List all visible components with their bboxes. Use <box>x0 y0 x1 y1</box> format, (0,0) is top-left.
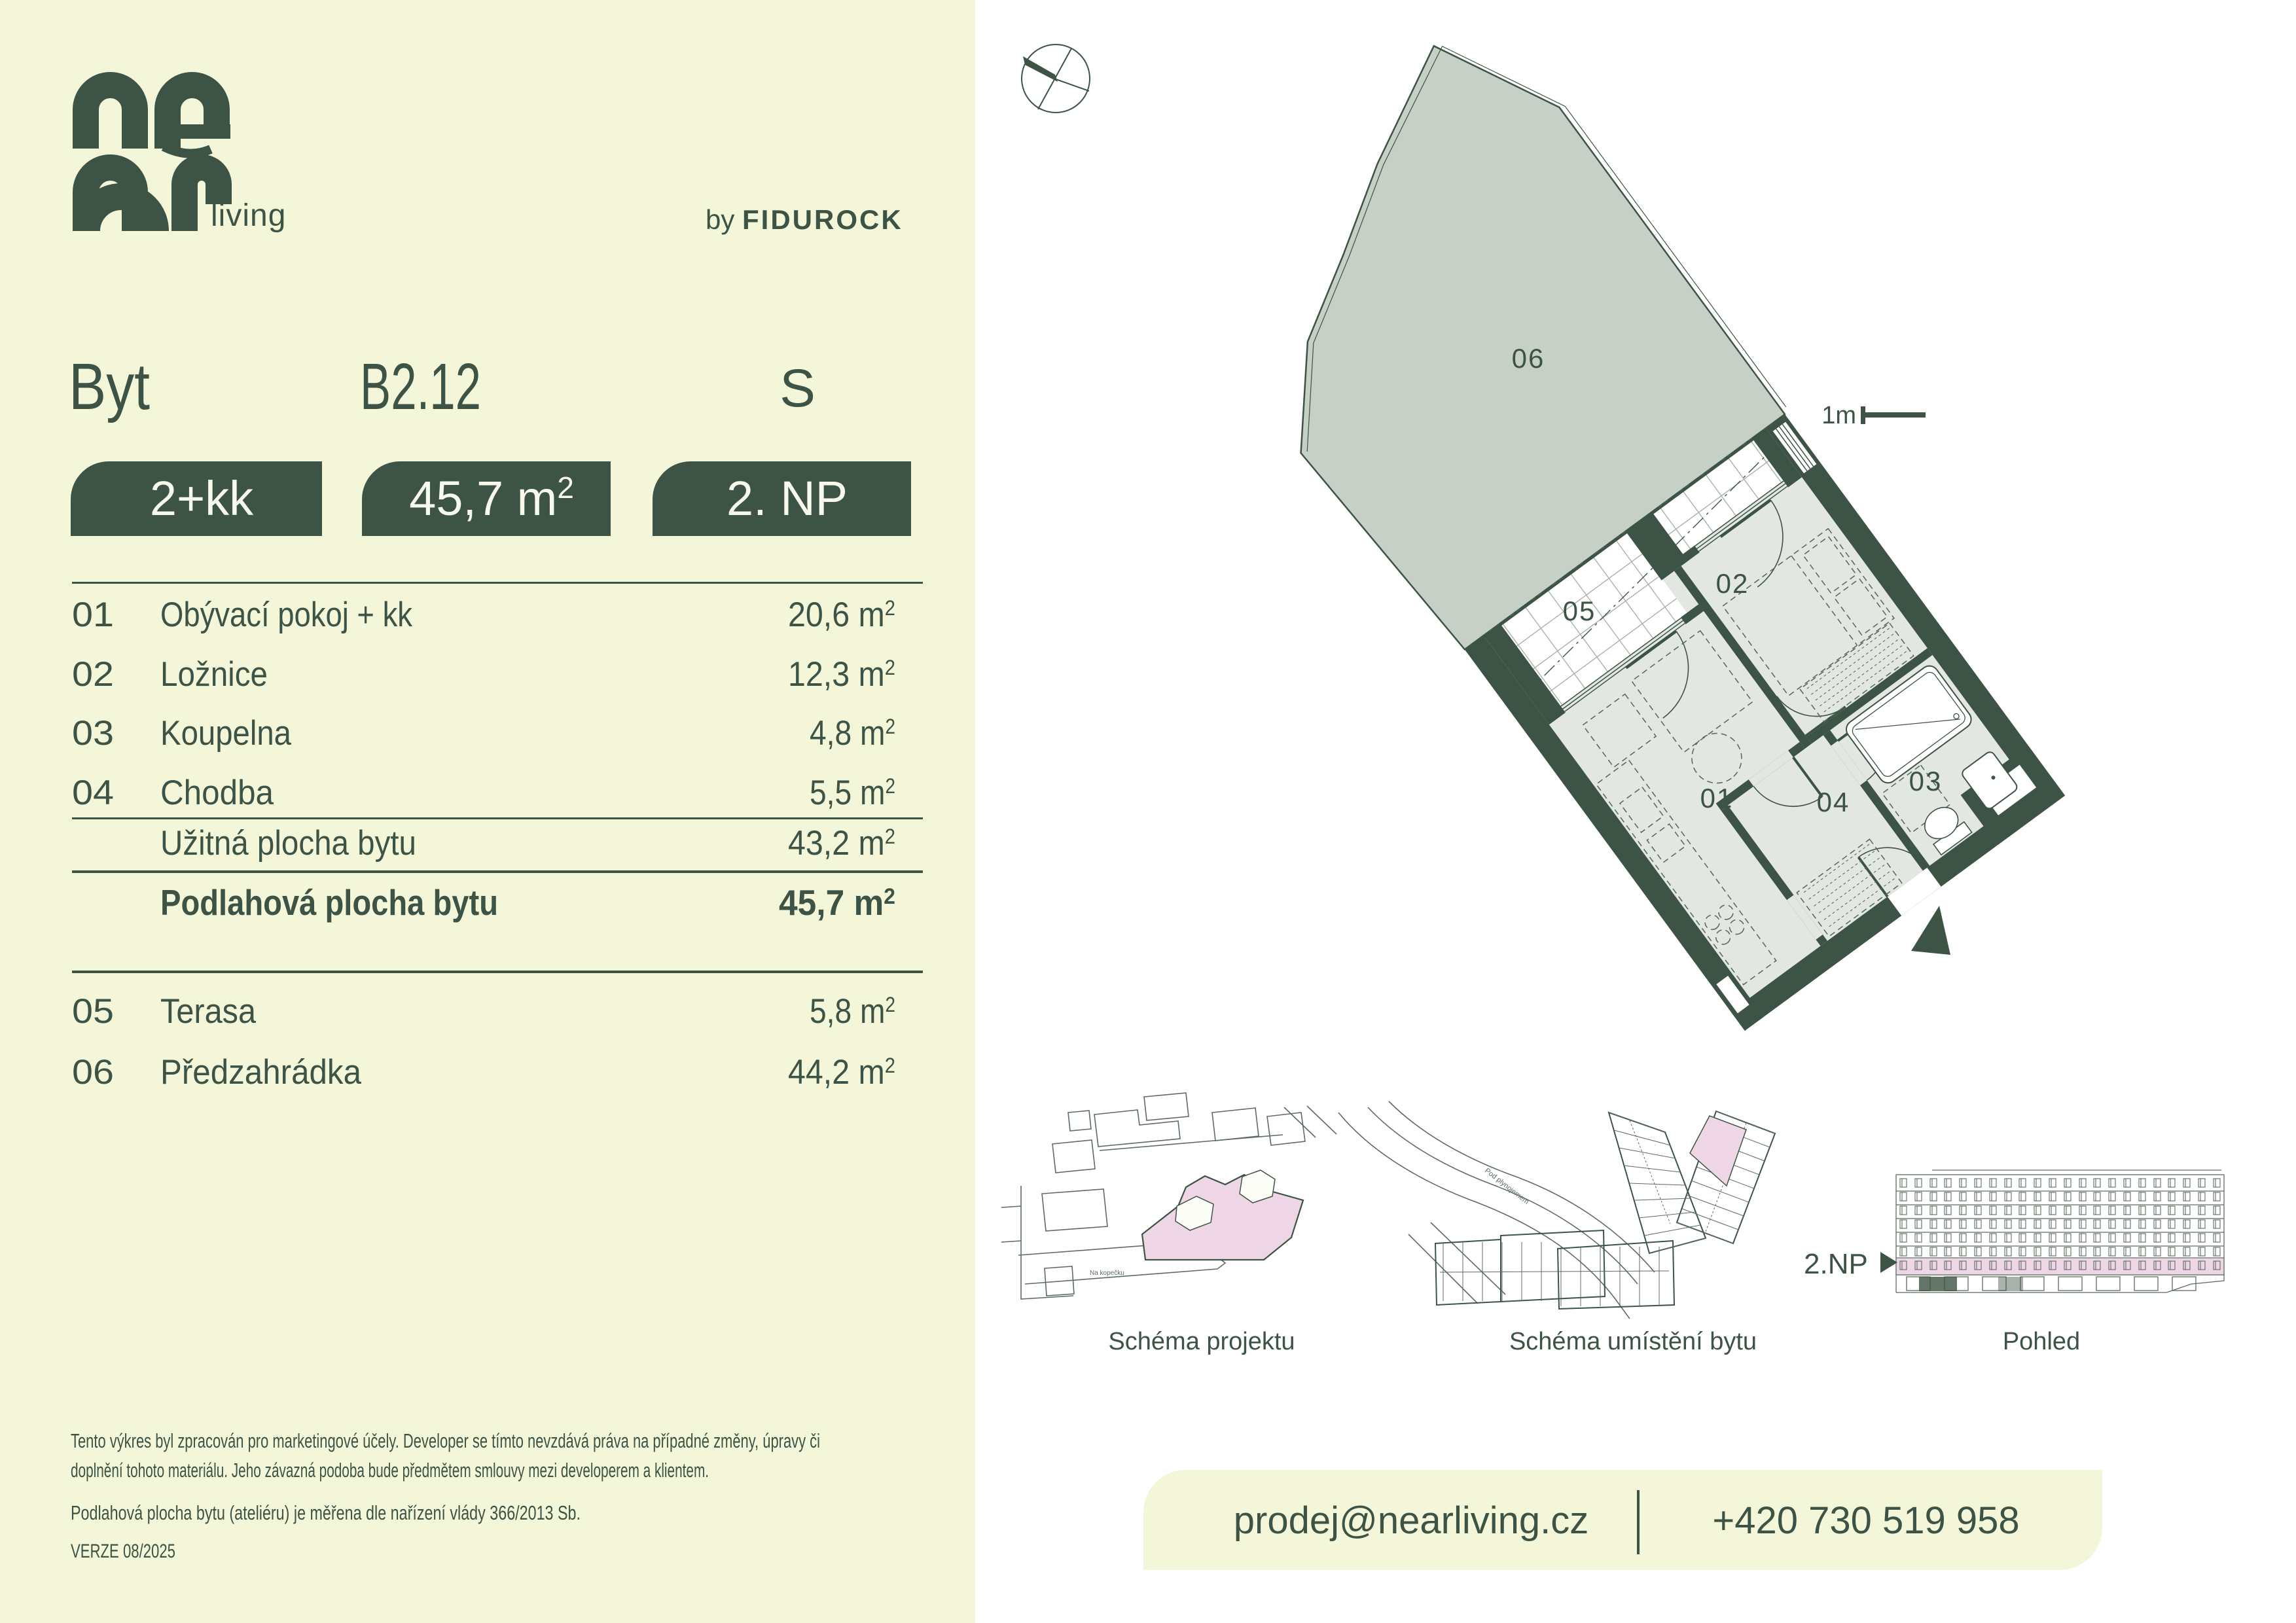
svg-text:02: 02 <box>1716 568 1749 599</box>
svg-text:Podlahová plocha bytu (ateliér: Podlahová plocha bytu (ateliéru) je měře… <box>71 1501 581 1524</box>
svg-text:doplnění tohoto materiálu. Jeh: doplnění tohoto materiálu. Jeho závazná … <box>71 1459 709 1482</box>
svg-text:01: 01 <box>72 596 114 634</box>
svg-text:VERZE 08/2025: VERZE 08/2025 <box>71 1541 175 1562</box>
svg-text:12,3 m2: 12,3 m2 <box>788 655 895 694</box>
svg-text:by FIDUROCK: by FIDUROCK <box>706 204 903 235</box>
svg-text:45,7 m2: 45,7 m2 <box>409 471 574 526</box>
svg-text:B2.12: B2.12 <box>360 350 481 423</box>
svg-text:prodej@nearliving.cz: prodej@nearliving.cz <box>1234 1499 1588 1542</box>
svg-text:Pohled: Pohled <box>2003 1328 2080 1355</box>
svg-text:03: 03 <box>72 714 114 753</box>
svg-text:Podlahová plocha bytu: Podlahová plocha bytu <box>160 882 498 923</box>
svg-text:05: 05 <box>1563 596 1596 626</box>
svg-text:Ložnice: Ložnice <box>160 655 268 694</box>
svg-text:4,8 m2: 4,8 m2 <box>810 714 895 753</box>
svg-text:1m: 1m <box>1821 402 1856 429</box>
svg-text:Chodba: Chodba <box>160 774 274 812</box>
svg-text:06: 06 <box>72 1053 114 1092</box>
svg-text:2.NP: 2.NP <box>1804 1248 1868 1280</box>
svg-text:Byt: Byt <box>69 350 150 423</box>
svg-text:Obývací pokoj + kk: Obývací pokoj + kk <box>160 596 412 634</box>
svg-text:45,7 m2: 45,7 m2 <box>779 882 895 923</box>
svg-text:20,6 m2: 20,6 m2 <box>788 596 895 634</box>
svg-text:5,5 m2: 5,5 m2 <box>810 774 895 812</box>
svg-text:Tento výkres byl zpracován pro: Tento výkres byl zpracován pro marketing… <box>71 1429 820 1452</box>
svg-text:Užitná plocha bytu: Užitná plocha bytu <box>160 824 416 863</box>
svg-text:Předzahrádka: Předzahrádka <box>160 1053 361 1092</box>
svg-text:2+kk: 2+kk <box>150 471 254 526</box>
svg-text:S: S <box>780 359 816 418</box>
svg-text:living: living <box>211 198 286 233</box>
svg-text:04: 04 <box>1817 787 1850 817</box>
svg-text:2. NP: 2. NP <box>726 471 848 526</box>
svg-text:+420 730 519 958: +420 730 519 958 <box>1712 1499 2019 1542</box>
svg-text:Koupelna: Koupelna <box>160 714 291 753</box>
svg-text:5,8 m2: 5,8 m2 <box>810 992 895 1031</box>
svg-text:43,2 m2: 43,2 m2 <box>788 824 895 863</box>
svg-text:03: 03 <box>1909 766 1943 796</box>
svg-text:Schéma projektu: Schéma projektu <box>1108 1328 1295 1355</box>
svg-text:05: 05 <box>72 992 114 1031</box>
svg-text:44,2 m2: 44,2 m2 <box>788 1053 895 1092</box>
svg-text:04: 04 <box>72 774 114 812</box>
svg-text:Na kopečku: Na kopečku <box>1090 1270 1124 1277</box>
svg-text:Terasa: Terasa <box>160 992 256 1031</box>
svg-text:Schéma umístění bytu: Schéma umístění bytu <box>1509 1328 1757 1355</box>
svg-text:01: 01 <box>1700 783 1734 813</box>
svg-text:02: 02 <box>72 655 114 694</box>
svg-text:06: 06 <box>1512 343 1545 374</box>
svg-text:Pod plynojemem: Pod plynojemem <box>1483 1167 1530 1206</box>
